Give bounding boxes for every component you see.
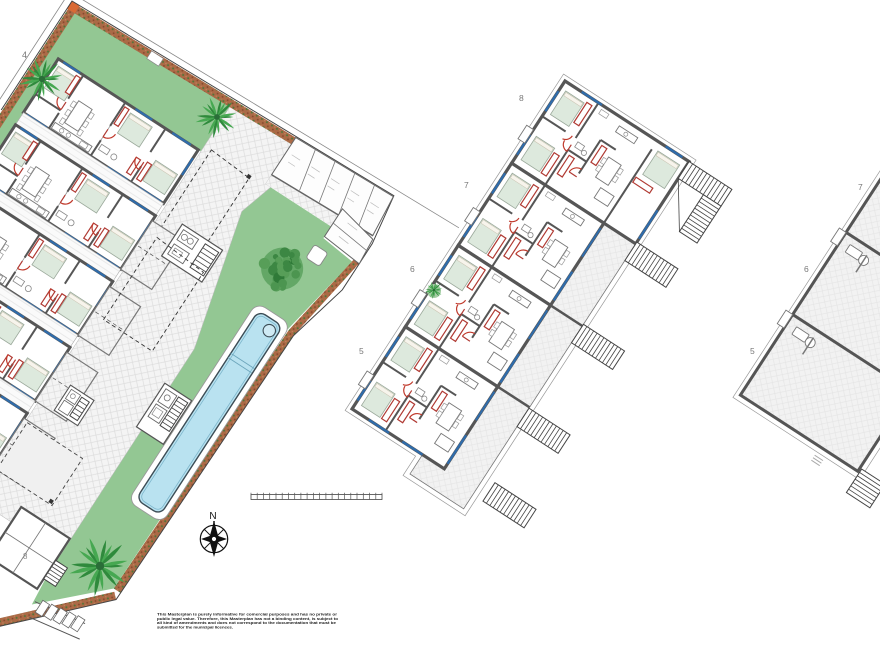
svg-text:N: N [209, 511, 216, 522]
svg-text:8: 8 [519, 93, 524, 103]
svg-text:7: 7 [858, 182, 863, 192]
svg-text:4: 4 [22, 50, 27, 60]
svg-text:6: 6 [410, 264, 415, 274]
svg-text:6: 6 [804, 264, 809, 274]
svg-text:5: 5 [359, 346, 364, 356]
svg-text:8: 8 [23, 552, 28, 561]
svg-text:submitted for the municipal li: submitted for the municipal licences. [157, 625, 233, 629]
svg-text:7: 7 [464, 180, 469, 190]
svg-text:5: 5 [750, 346, 755, 356]
